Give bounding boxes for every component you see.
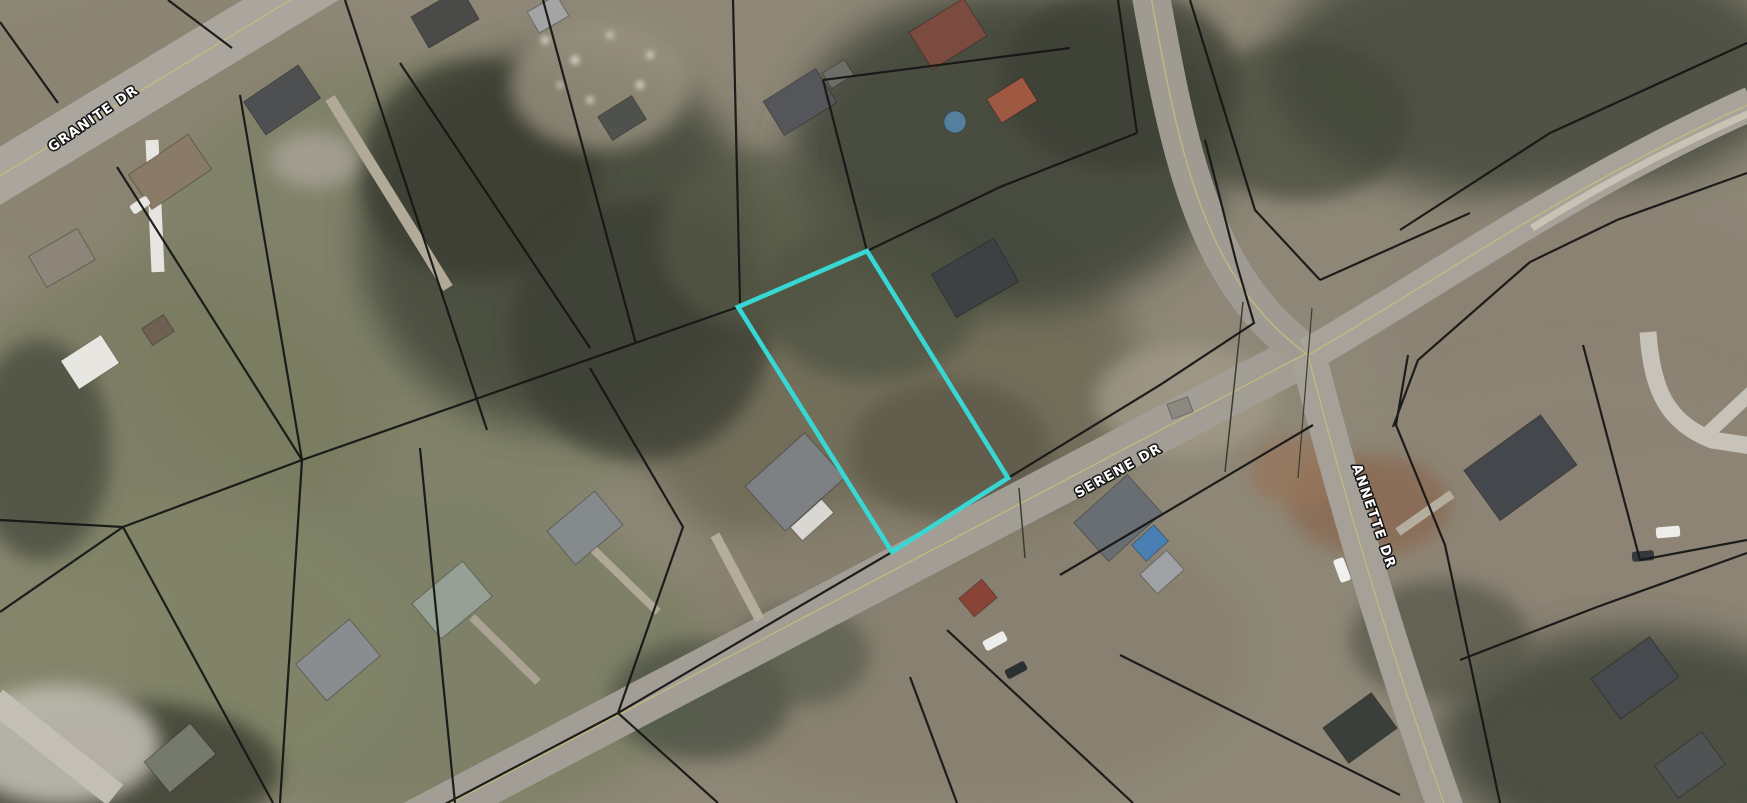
- map-viewport[interactable]: GRANITE DR SERENE DR ANNETTE DR: [0, 0, 1747, 803]
- dirt-patch: [270, 132, 360, 188]
- swimming-pool: [944, 111, 966, 133]
- tree-canopy: [1190, 40, 1410, 200]
- car-white: [1656, 525, 1681, 538]
- dirt-patch: [510, 20, 690, 150]
- parcel-map-canvas: GRANITE DR SERENE DR ANNETTE DR: [0, 0, 1747, 803]
